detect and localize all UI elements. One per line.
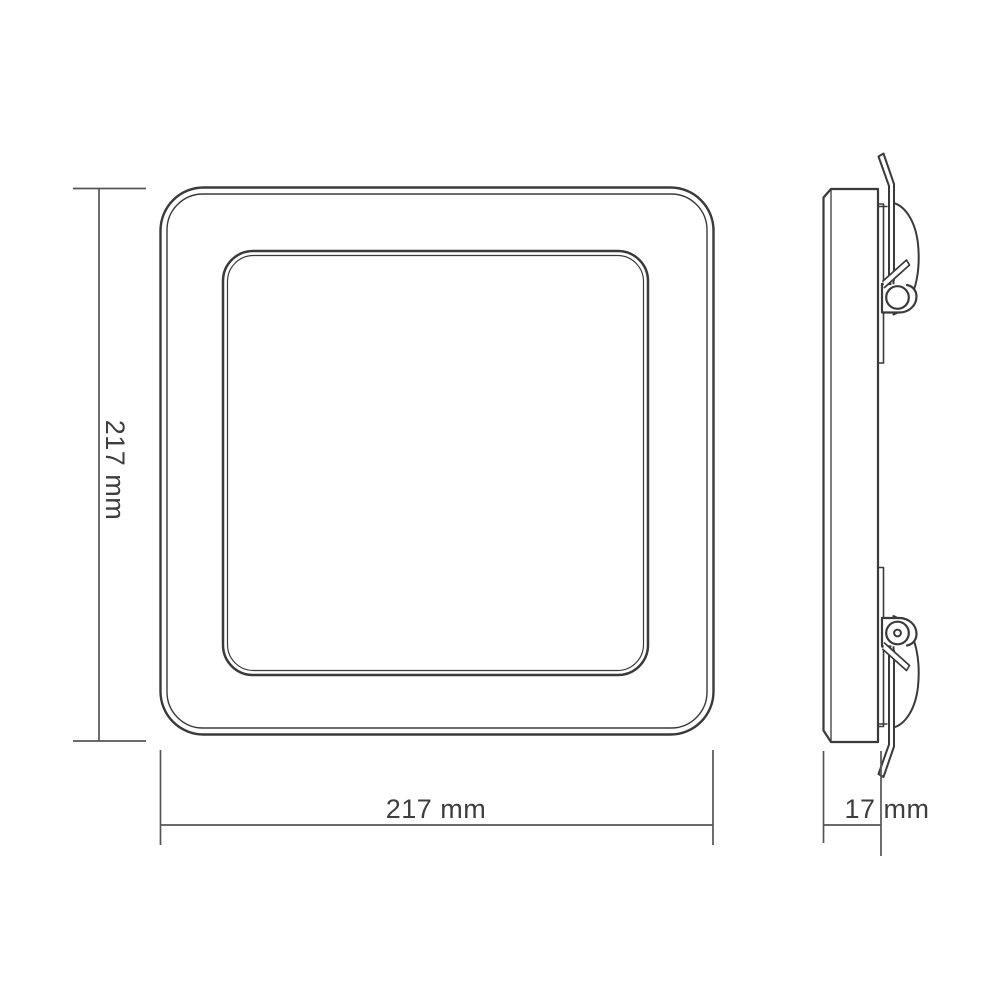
technical-drawing-canvas: 217 mm 217 mm 17 mm: [0, 0, 1000, 1000]
depth-dim-label: 17 mm: [844, 794, 929, 824]
front-view-panel-inner-line: [228, 256, 644, 671]
front-view-outer-frame-inner-line: [167, 194, 707, 728]
dimension-drawing: 217 mm 217 mm 17 mm: [0, 0, 1000, 1000]
clip-mounting-arm: [879, 154, 895, 281]
side-view-bottom-clip: [878, 568, 919, 778]
side-view-top-clip: [878, 154, 919, 364]
height-dim-label: 217 mm: [100, 420, 130, 521]
front-view-outer-frame-outline: [161, 188, 714, 735]
dimension-labels: 217 mm 217 mm 17 mm: [100, 420, 930, 824]
front-view-panel-outline: [223, 251, 648, 675]
side-view: [824, 154, 919, 778]
part-linework: [161, 154, 919, 778]
width-dim-label: 217 mm: [386, 794, 487, 824]
spring-coil: [886, 286, 909, 309]
dimension-linework: [73, 189, 881, 857]
side-view-body: [824, 189, 879, 742]
front-view: [161, 188, 714, 735]
